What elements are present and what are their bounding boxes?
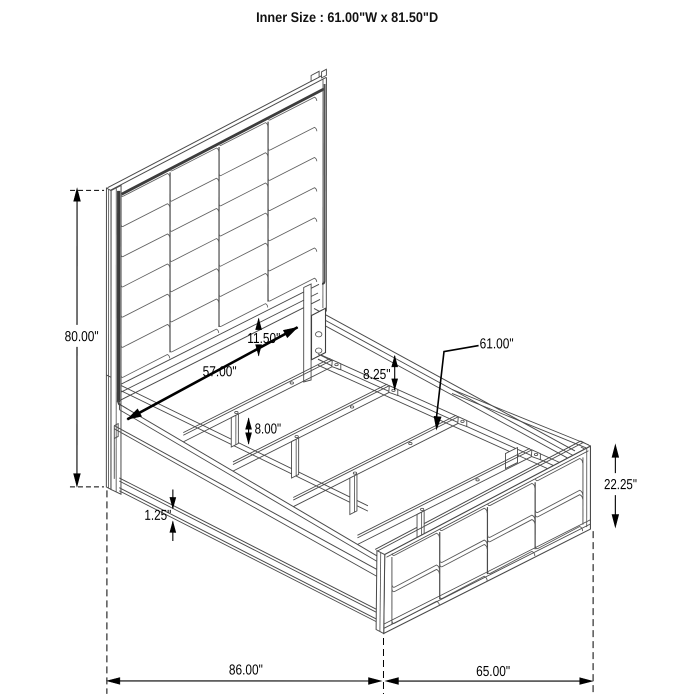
svg-text:1.25": 1.25" <box>144 508 171 524</box>
svg-text:8.25": 8.25" <box>363 367 391 383</box>
svg-text:61.00": 61.00" <box>480 336 514 352</box>
svg-text:22.25": 22.25" <box>604 477 637 493</box>
svg-text:65.00": 65.00" <box>476 664 510 680</box>
svg-text:11.50": 11.50" <box>247 331 280 347</box>
svg-text:57.00": 57.00" <box>203 364 237 380</box>
svg-text:80.00": 80.00" <box>65 329 99 345</box>
svg-text:8.00": 8.00" <box>255 421 282 437</box>
svg-text:86.00": 86.00" <box>229 662 263 678</box>
svg-text:Inner Size : 61.00"W x 81.50"D: Inner Size : 61.00"W x 81.50"D <box>256 9 438 25</box>
